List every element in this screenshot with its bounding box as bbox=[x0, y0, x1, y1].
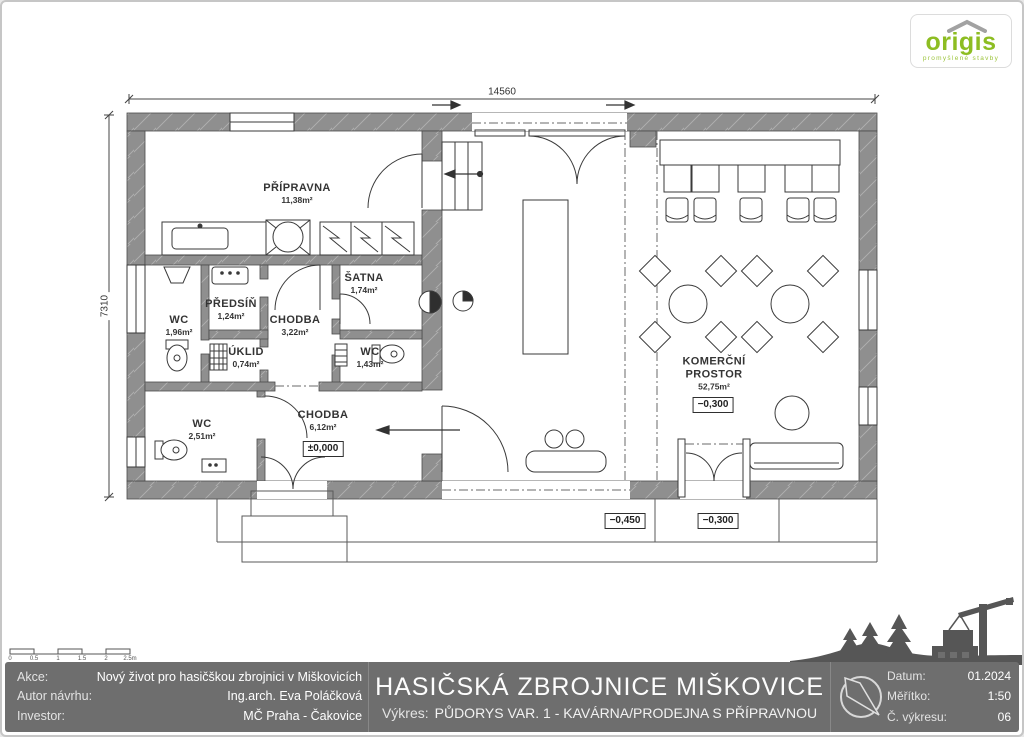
title-block-left: Akce: Nový život pro hasičškou zbrojnici… bbox=[5, 662, 369, 732]
room-label-pripravna: PŘÍPRAVNA 11,38m² bbox=[263, 182, 331, 206]
room-area: 0,74m² bbox=[228, 359, 264, 370]
room-label-predsin: PŘEDSÍŇ 1,24m² bbox=[205, 298, 257, 322]
number-row: Č. výkresu: 06 bbox=[887, 710, 1011, 725]
number-value: 06 bbox=[998, 710, 1011, 725]
dimension-width: 14560 bbox=[485, 87, 519, 98]
title-block-center: HASIČSKÁ ZBROJNICE MIŠKOVICE Výkres:PŮDO… bbox=[369, 662, 831, 732]
room-area: 1,43m² bbox=[357, 359, 384, 370]
origis-logo: origis promyšlené stavby bbox=[910, 14, 1012, 68]
drawing-value: PŮDORYS VAR. 1 - KAVÁRNA/PRODEJNA S PŘÍP… bbox=[435, 705, 818, 721]
room-name-line2: PROSTOR bbox=[682, 369, 745, 382]
drawing-label: Výkres: bbox=[382, 705, 429, 721]
investor-row: Investor: MČ Praha - Čakovice bbox=[17, 709, 362, 724]
project-label: Akce: bbox=[17, 670, 48, 685]
exterior-lines bbox=[217, 491, 877, 562]
author-label: Autor návrhu: bbox=[17, 689, 92, 704]
room-label-chodba2: CHODBA 6,12m² bbox=[298, 409, 349, 433]
room-label-satna: ŠATNA 1,74m² bbox=[344, 272, 383, 296]
room-name: CHODBA bbox=[270, 314, 321, 327]
date-value: 01.2024 bbox=[968, 669, 1011, 684]
project-value: Nový život pro hasičškou zbrojnici v Miš… bbox=[97, 670, 362, 685]
room-label-komercni: KOMERČNÍ PROSTOR 52,75m² bbox=[682, 356, 745, 393]
floor-plan-drawing bbox=[2, 2, 1024, 737]
room-area: 52,75m² bbox=[682, 382, 745, 393]
north-arrow-icon bbox=[835, 671, 887, 723]
room-area: 11,38m² bbox=[263, 195, 331, 206]
author-row: Autor návrhu: Ing.arch. Eva Poláčková bbox=[17, 689, 362, 704]
room-label-wc2: WC 1,43m² bbox=[357, 346, 384, 370]
scale-row: Měřítko: 1:50 bbox=[887, 689, 1011, 704]
room-label-wc3: WC 2,51m² bbox=[189, 418, 216, 442]
scale-value: 1:50 bbox=[988, 689, 1011, 704]
date-label: Datum: bbox=[887, 669, 926, 684]
project-row: Akce: Nový život pro hasičškou zbrojnici… bbox=[17, 670, 362, 685]
main-title: HASIČSKÁ ZBROJNICE MIŠKOVICE bbox=[375, 673, 824, 701]
logo-text: origis bbox=[913, 30, 1009, 54]
room-name: WC bbox=[166, 314, 193, 327]
room-area: 1,74m² bbox=[344, 285, 383, 296]
room-label-wc1: WC 1,96m² bbox=[166, 314, 193, 338]
number-label: Č. výkresu: bbox=[887, 710, 947, 725]
date-row: Datum: 01.2024 bbox=[887, 669, 1011, 684]
title-block: Akce: Nový život pro hasičškou zbrojnici… bbox=[5, 662, 1019, 732]
scale-label: Měřítko: bbox=[887, 689, 930, 704]
room-area: 2,51m² bbox=[189, 431, 216, 442]
elevation-marker-exterior-left: −0,450 bbox=[605, 513, 646, 529]
room-name: PŘEDSÍŇ bbox=[205, 298, 257, 311]
room-area: 1,24m² bbox=[205, 311, 257, 322]
scale-bar-graphic bbox=[10, 649, 130, 654]
room-area: 3,22m² bbox=[270, 327, 321, 338]
room-label-uklid: ÚKLID 0,74m² bbox=[228, 346, 264, 370]
room-name: ŠATNA bbox=[344, 272, 383, 285]
construction-silhouette bbox=[790, 597, 1023, 665]
elevation-marker-exterior-right: −0,300 bbox=[698, 513, 739, 529]
room-label-chodba1: CHODBA 3,22m² bbox=[270, 314, 321, 338]
elevation-marker-komercni: −0,300 bbox=[693, 397, 734, 413]
drawing-meta: Datum: 01.2024 Měřítko: 1:50 Č. výkresu:… bbox=[887, 666, 1011, 728]
room-name: WC bbox=[189, 418, 216, 431]
drawing-row: Výkres:PŮDORYS VAR. 1 - KAVÁRNA/PRODEJNA… bbox=[382, 705, 817, 721]
room-area: 6,12m² bbox=[298, 422, 349, 433]
room-name-line1: KOMERČNÍ bbox=[682, 356, 745, 369]
room-area: 1,96m² bbox=[166, 327, 193, 338]
dimension-height: 7310 bbox=[100, 292, 111, 320]
elevation-marker-chodba: ±0,000 bbox=[303, 441, 344, 457]
room-name: CHODBA bbox=[298, 409, 349, 422]
author-value: Ing.arch. Eva Poláčková bbox=[227, 689, 362, 704]
drawing-sheet: origis promyšlené stavby 14560 7310 PŘÍP… bbox=[0, 0, 1024, 737]
room-name: ÚKLID bbox=[228, 346, 264, 359]
investor-value: MČ Praha - Čakovice bbox=[243, 709, 362, 724]
investor-label: Investor: bbox=[17, 709, 65, 724]
title-block-right: Datum: 01.2024 Měřítko: 1:50 Č. výkresu:… bbox=[831, 662, 1019, 732]
room-name: WC bbox=[357, 346, 384, 359]
logo-tagline: promyšlené stavby bbox=[913, 55, 1009, 62]
room-name: PŘÍPRAVNA bbox=[263, 182, 331, 195]
